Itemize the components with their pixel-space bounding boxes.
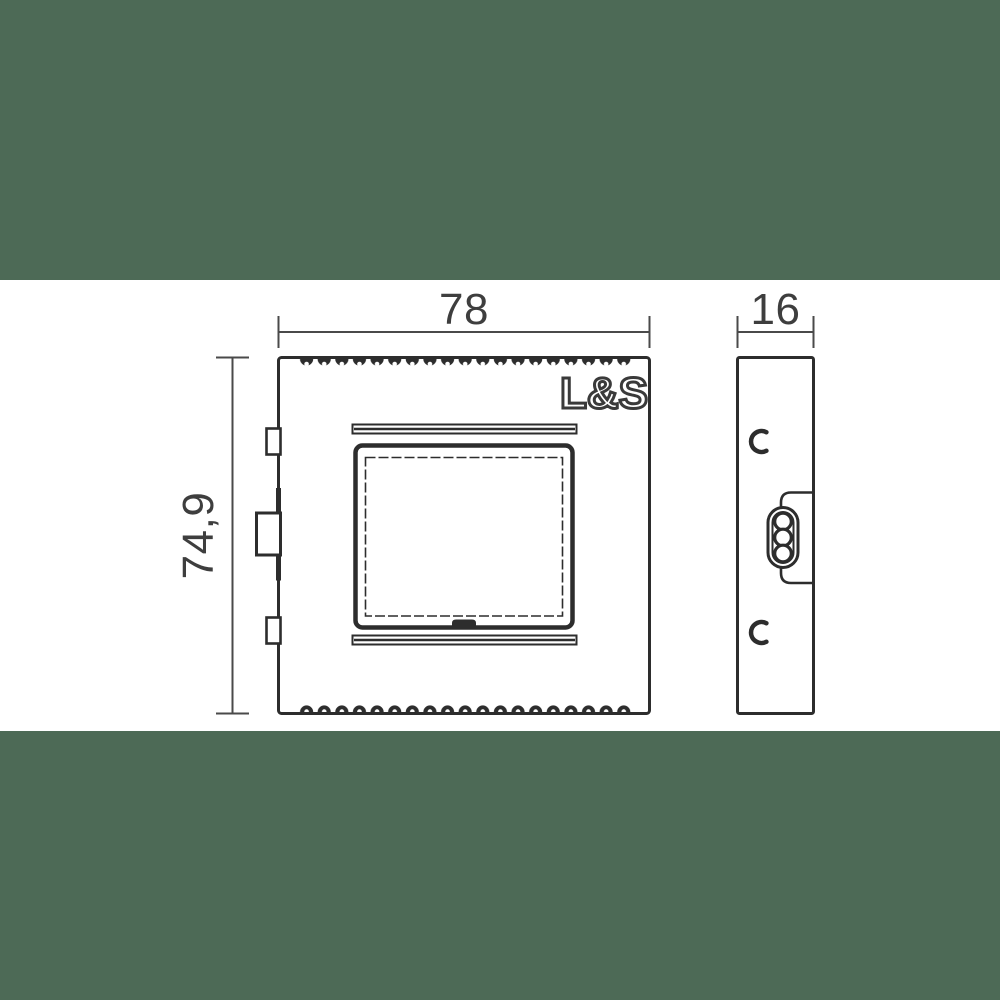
vent-scallops-bottom (298, 704, 633, 712)
vent-scallops-top (298, 359, 633, 367)
height-dimension-label: 74,9 (174, 492, 223, 580)
technical-drawing: 78 16 74,9 L&S (0, 0, 1000, 1000)
technical-drawing-page: 78 16 74,9 L&S (0, 0, 1000, 1000)
display-slot-top (353, 425, 577, 434)
width-dimension-label: 78 (439, 285, 489, 334)
connector-pin-3 (775, 545, 792, 562)
brand-logo: L&S (560, 369, 648, 418)
depth-dimension-label: 16 (751, 285, 801, 334)
connector-pin-1 (775, 513, 792, 530)
connector-pin-2 (775, 529, 792, 546)
side-view (738, 358, 814, 714)
display-notch (452, 620, 476, 628)
display-bezel (356, 446, 573, 628)
mounting-tab-top (267, 429, 281, 455)
mounting-tab-middle (257, 513, 281, 555)
mounting-tab-bottom (267, 618, 281, 644)
display-slot-bottom (353, 636, 577, 645)
